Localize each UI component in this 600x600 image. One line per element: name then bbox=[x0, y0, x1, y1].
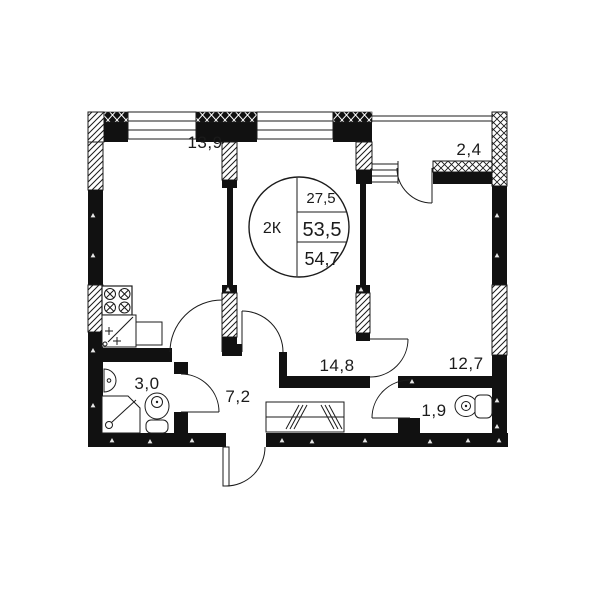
room-label-wc: 1,9 bbox=[421, 401, 446, 420]
floorplan-drawing: 2К 27,5 53,5 54,7 13,9 2,4 14,8 12,7 3,0… bbox=[0, 0, 600, 600]
room-label-bathroom: 3,0 bbox=[134, 374, 159, 393]
room-label-balcony: 2,4 bbox=[456, 140, 481, 159]
toilet-wc-icon bbox=[455, 395, 492, 418]
legend-type-label: 2К bbox=[263, 220, 282, 237]
bathroom-basin-icon bbox=[104, 369, 116, 392]
legend-living-area: 27,5 bbox=[306, 190, 335, 207]
toilet-bathroom-icon bbox=[145, 393, 169, 433]
wardrobe-icon bbox=[266, 402, 344, 432]
kitchen-stove-icon bbox=[102, 286, 132, 315]
room-label-kitchen-living: 13,9 bbox=[187, 133, 222, 152]
room-label-living: 14,8 bbox=[319, 356, 354, 375]
shower-icon bbox=[102, 396, 140, 433]
balcony-threshold bbox=[372, 161, 398, 184]
kitchen-sink-icon bbox=[102, 315, 162, 347]
legend-main-area: 53,5 bbox=[303, 219, 342, 241]
window-2 bbox=[257, 112, 333, 139]
door-entrance bbox=[223, 447, 265, 486]
legend-stamp: 2К 27,5 53,5 54,7 bbox=[249, 177, 349, 277]
door-balcony bbox=[397, 168, 432, 203]
door-living bbox=[242, 311, 283, 352]
door-bathroom bbox=[181, 374, 219, 412]
floorplan-page: 2К 27,5 53,5 54,7 13,9 2,4 14,8 12,7 3,0… bbox=[0, 0, 600, 600]
room-label-hallway: 7,2 bbox=[225, 387, 250, 406]
door-kitchen-living bbox=[170, 300, 222, 352]
window-1 bbox=[128, 112, 196, 139]
legend-total-area: 54,7 bbox=[304, 249, 339, 269]
door-bedroom bbox=[370, 339, 408, 377]
room-label-bedroom: 12,7 bbox=[448, 354, 483, 373]
